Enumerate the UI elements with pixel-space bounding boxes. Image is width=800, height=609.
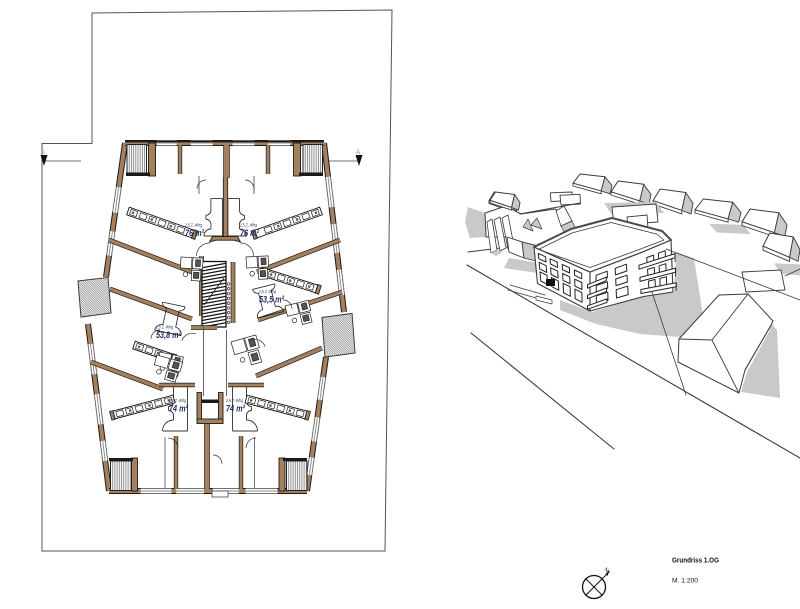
svg-text:Grundriss 1.OG: Grundriss 1.OG xyxy=(672,558,719,565)
svg-text:74 m²: 74 m² xyxy=(226,404,246,414)
svg-text:2,5 Z.-Whg: 2,5 Z.-Whg xyxy=(225,398,243,403)
svg-text:76 m²: 76 m² xyxy=(240,228,260,238)
svg-text:1,5 Z.-Whg: 1,5 Z.-Whg xyxy=(259,289,276,294)
svg-text:2,5 Z.-Whg: 2,5 Z.-Whg xyxy=(168,398,186,403)
svg-text:2,5 Z.-Whg: 2,5 Z.-Whg xyxy=(184,223,202,228)
svg-text:2,5 Z.-Whg: 2,5 Z.-Whg xyxy=(239,223,257,228)
svg-text:1,5 Z.-Whg: 1,5 Z.-Whg xyxy=(156,325,173,330)
svg-text:74 m²: 74 m² xyxy=(169,404,189,414)
svg-text:A: A xyxy=(41,150,45,156)
svg-text:53,8 m²: 53,8 m² xyxy=(156,330,182,340)
svg-text:M. 1:200: M. 1:200 xyxy=(672,578,698,585)
svg-text:A: A xyxy=(356,150,360,156)
svg-text:76 m²: 76 m² xyxy=(185,228,205,238)
svg-text:53,5 m²: 53,5 m² xyxy=(259,295,285,305)
